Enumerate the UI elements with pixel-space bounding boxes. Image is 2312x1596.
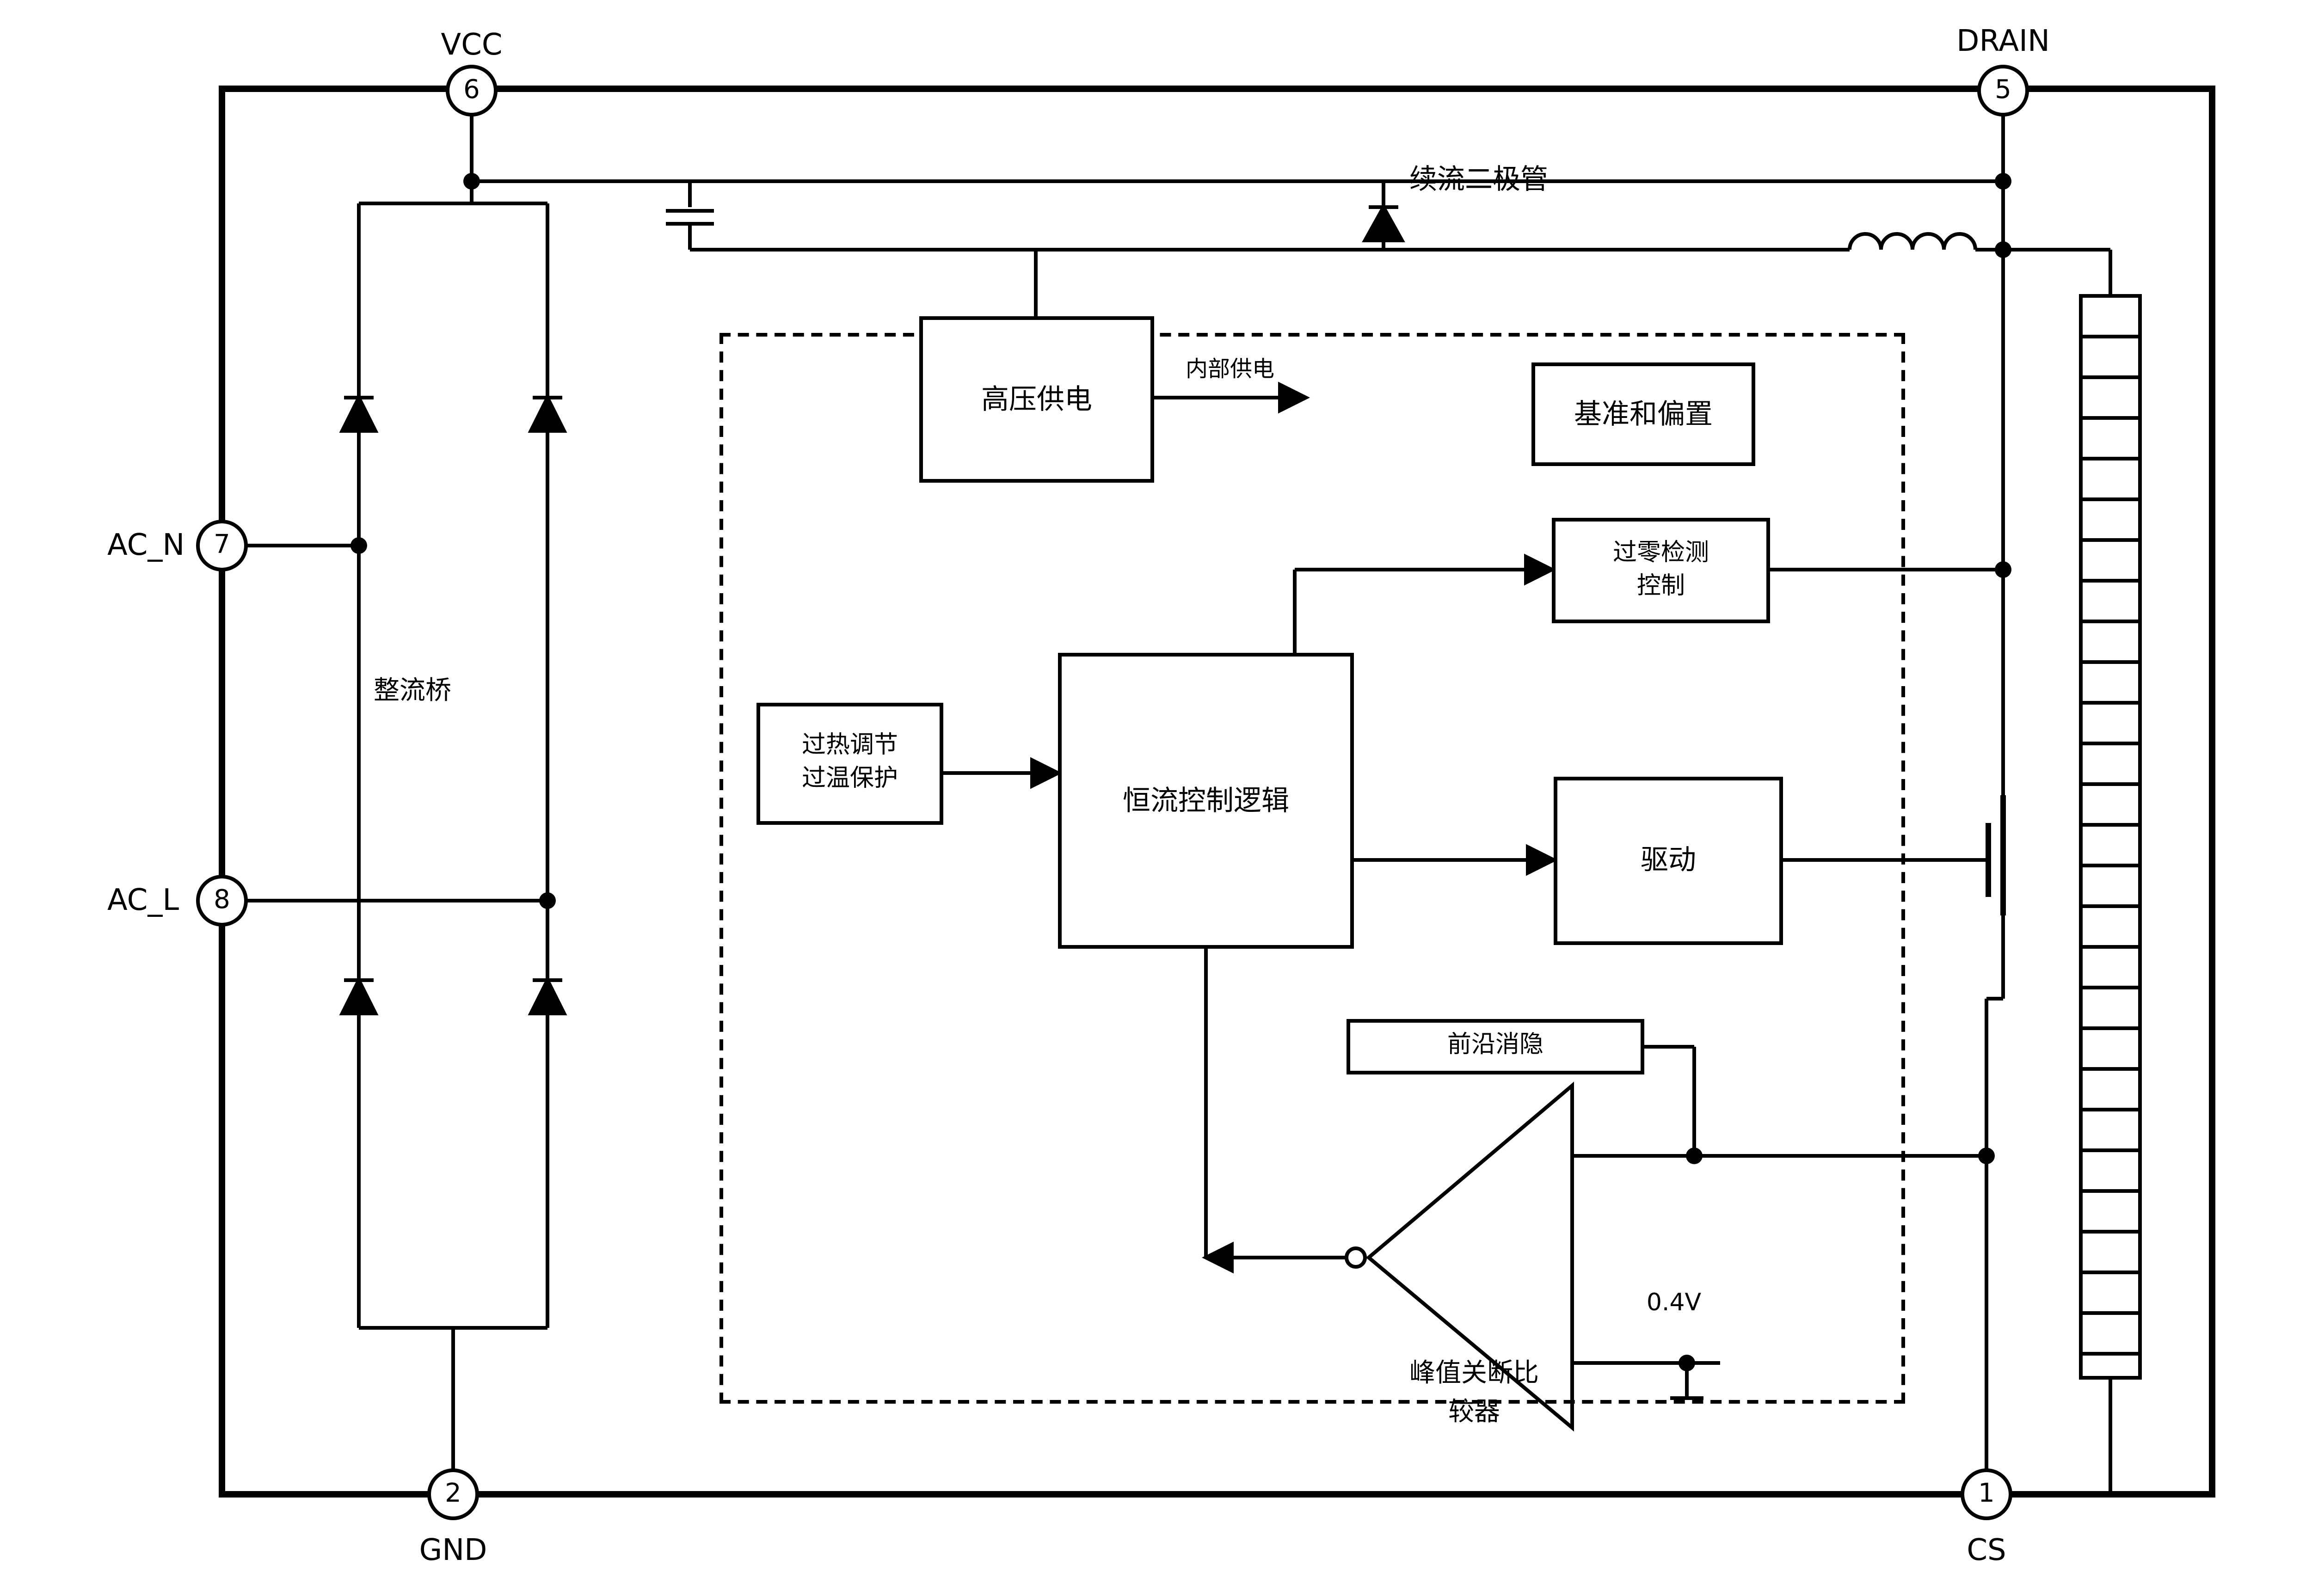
freewheel-diode-symbol: [1365, 207, 1402, 240]
block-high-voltage-supply: 高压供电: [919, 316, 1154, 483]
rectifier-bridge-label: 整流桥: [370, 671, 455, 708]
block-reference-bias: 基准和偏置: [1531, 362, 1755, 466]
block-cc-control-logic: 恒流控制逻辑: [1058, 653, 1354, 949]
block-label: 过零检测 控制: [1613, 538, 1709, 603]
pin-cs: 1: [1961, 1468, 2012, 1520]
pin-label-vcc: VCC: [441, 27, 502, 62]
block-label: 高压供电: [981, 381, 1092, 418]
pin-acn: 7: [196, 520, 248, 571]
block-label: 恒流控制逻辑: [1123, 782, 1289, 820]
block-driver: 驱动: [1554, 777, 1783, 945]
peak-comparator-label: 峰值关断比 较器: [1372, 1356, 1576, 1433]
block-leading-edge-blanking: 前沿消隐: [1347, 1019, 1644, 1074]
vref-label: 0.4V: [1647, 1290, 1701, 1318]
block-zero-cross-detect: 过零检测 控制: [1552, 518, 1770, 623]
block-label: 驱动: [1641, 842, 1696, 880]
pin-drain: 5: [1977, 65, 2029, 117]
inductor-coil: [1850, 234, 1975, 250]
pin-vcc: 6: [446, 65, 498, 117]
internal-supply-label: 内部供电: [1186, 352, 1274, 384]
power-mosfet-symbol: [1988, 795, 2003, 915]
pin-label-acl: AC_L: [107, 882, 179, 917]
block-thermal-protect: 过热调节 过温保护: [756, 703, 943, 825]
pin-label-cs: CS: [1967, 1532, 2006, 1567]
pin-label-gnd: GND: [419, 1532, 487, 1567]
pin-label-drain: DRAIN: [1956, 23, 2050, 58]
freewheel-diode-label: 续流二极管: [1409, 159, 1548, 198]
led-load-symbol: [2081, 296, 2140, 1378]
pin-acl: 8: [196, 875, 248, 927]
block-label: 前沿消隐: [1447, 1031, 1543, 1063]
block-diagram-canvas: 高压供电 基准和偏置 过零检测 控制 过热调节 过温保护 恒流控制逻辑 驱动 前…: [0, 0, 2312, 1596]
rectifier-bridge-symbol: [342, 181, 564, 1494]
block-label: 基准和偏置: [1574, 396, 1713, 433]
pin-label-acn: AC_N: [107, 527, 184, 562]
pin-gnd: 2: [427, 1468, 479, 1520]
block-label: 过热调节 过温保护: [802, 731, 898, 796]
